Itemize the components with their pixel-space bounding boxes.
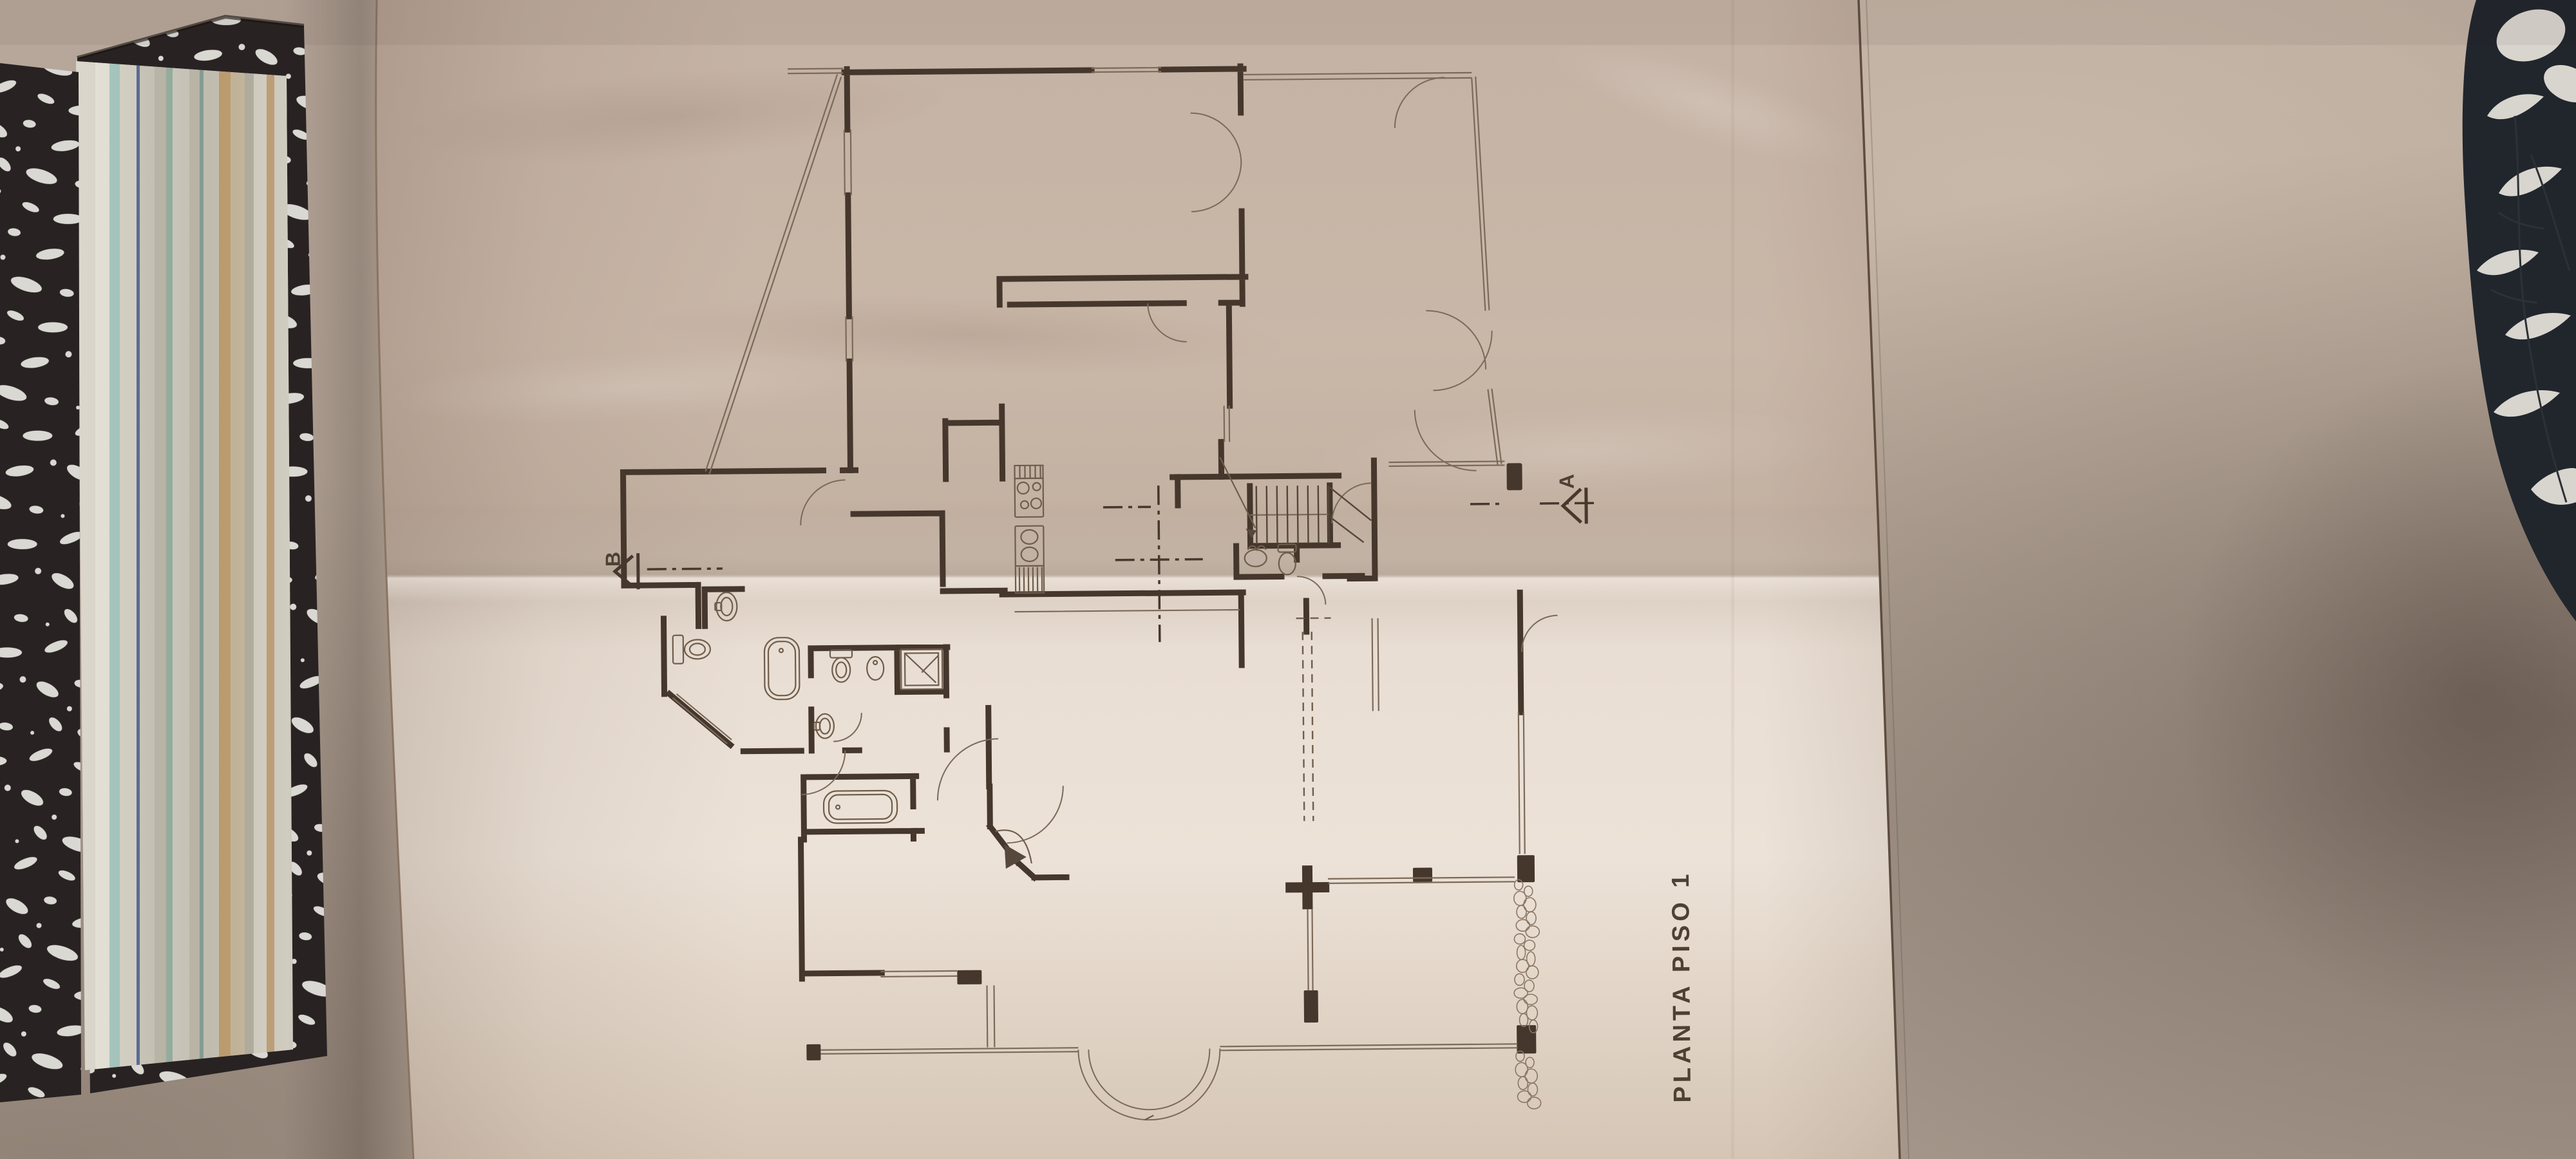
binder-front-cover — [0, 63, 81, 1102]
plan-wallf — [957, 970, 981, 985]
plan-label: A — [1555, 471, 1578, 489]
plan-stair-tread — [1256, 486, 1257, 544]
plan-stair-tread — [1329, 485, 1329, 543]
plan-stair-tread — [1298, 485, 1298, 543]
plan-wallf — [1517, 855, 1535, 882]
plan-stair-tread — [1318, 485, 1319, 543]
plan-stair-tread — [1287, 485, 1288, 543]
top-vignette — [0, 0, 2576, 45]
plan-title: PLANTA PISO 1 — [1667, 870, 1696, 1102]
plan-label: B — [601, 549, 625, 567]
plan-wallf — [1304, 990, 1318, 1022]
paper-vertical-crease — [1731, 0, 1734, 1159]
plan-wallf — [1506, 463, 1522, 490]
photo-scene: BAPLANTA PISO 1 — [0, 0, 2576, 1159]
scene-canvas: BAPLANTA PISO 1 — [0, 0, 2576, 1159]
binder-pages — [71, 52, 303, 1082]
plan-stair-tread — [1308, 485, 1309, 543]
floorplan-sheet: BAPLANTA PISO 1 — [361, 0, 1919, 1159]
plan-wallf — [806, 1044, 820, 1060]
plan-wallf — [1413, 867, 1432, 881]
plan-stair-tread — [1267, 486, 1267, 544]
plan-stair-tread — [1277, 486, 1278, 544]
binder — [0, 17, 327, 1102]
plan-wallf — [1517, 1025, 1536, 1053]
